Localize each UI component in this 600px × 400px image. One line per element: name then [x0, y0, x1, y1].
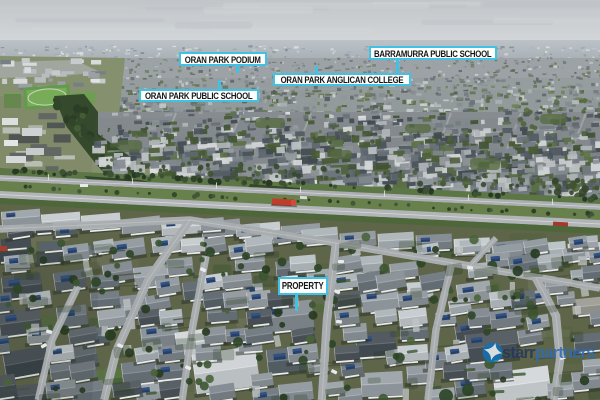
svg-text:starr: starr — [502, 344, 536, 362]
svg-text:partners: partners — [535, 344, 595, 362]
